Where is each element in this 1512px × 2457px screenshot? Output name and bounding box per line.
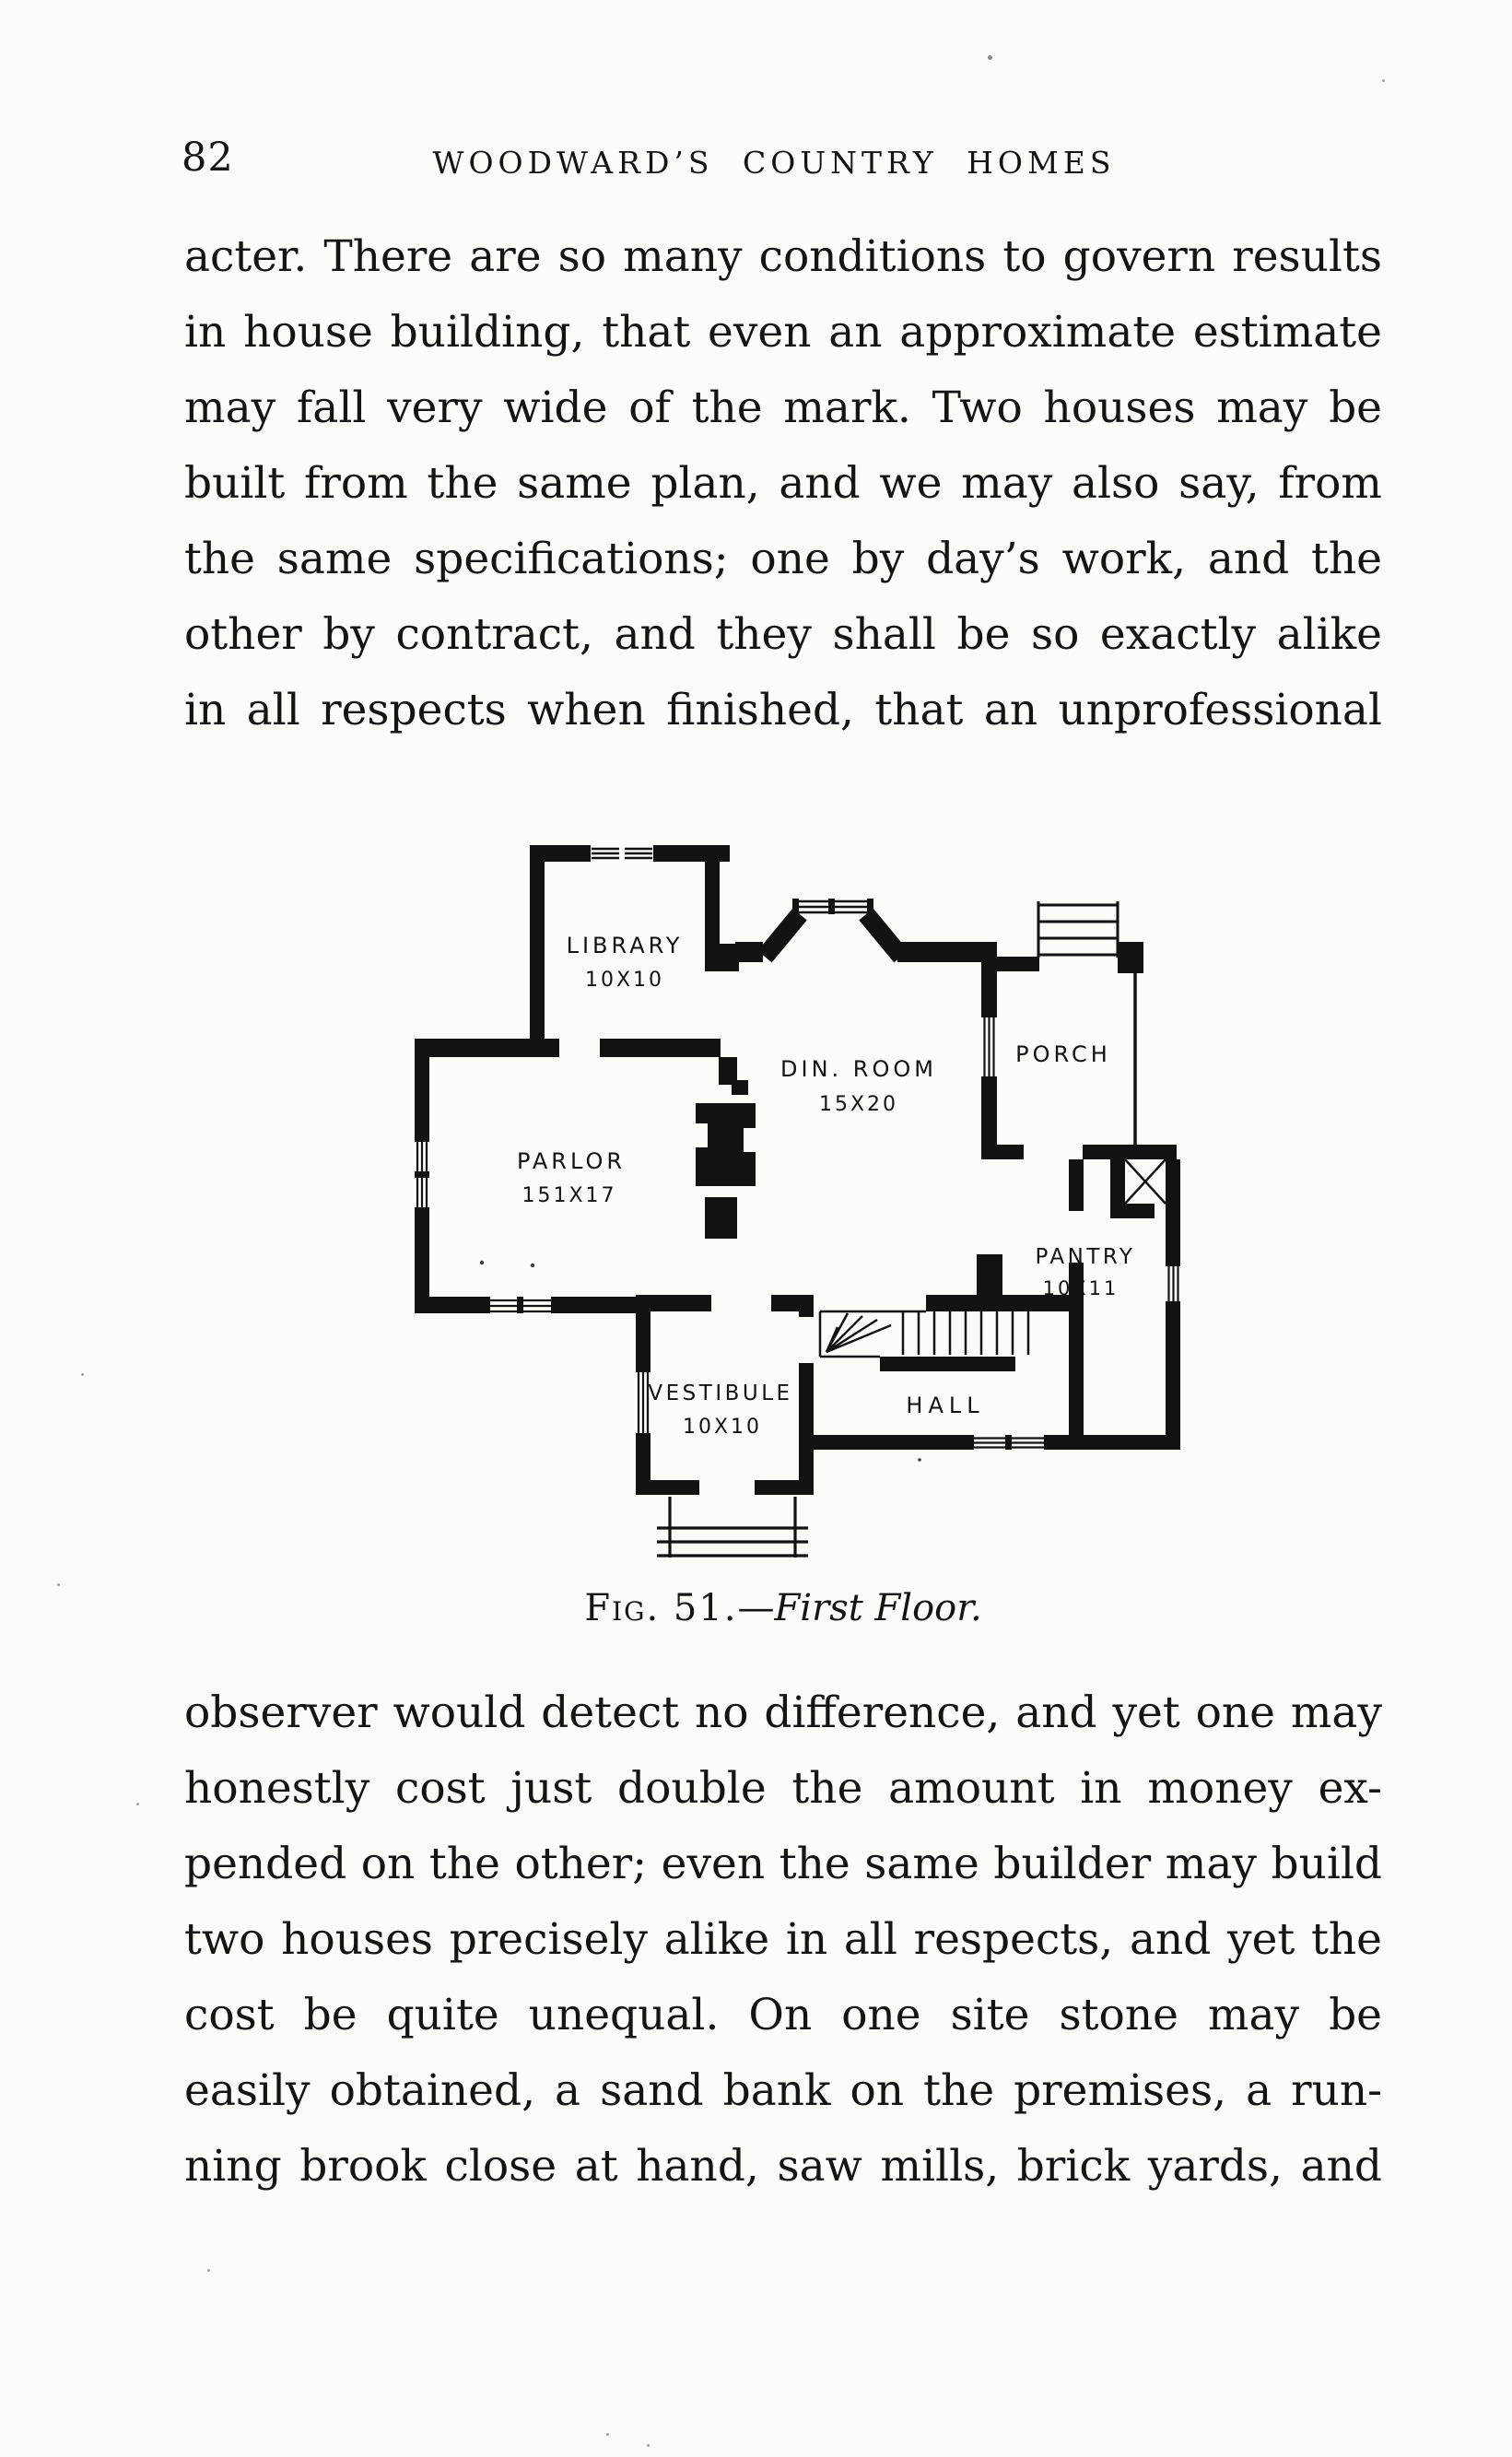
room-dims-parlor: 151X17: [522, 1184, 616, 1207]
body-line: the same specifications; one by day’s wo…: [184, 522, 1382, 597]
paragraph-1: acter. There are so many conditions to g…: [184, 219, 1382, 748]
body-line: cost be quite unequal. On one site stone…: [184, 1978, 1382, 2053]
body-line: acter. There are so many conditions to g…: [184, 219, 1382, 295]
room-label-vestibule: VESTIBULE: [648, 1381, 792, 1405]
body-line: easily obtained, a sand bank on the prem…: [184, 2053, 1382, 2129]
room-dims-vestibule: 10X10: [683, 1416, 762, 1439]
body-line: may fall very wide of the mark. Two hous…: [184, 370, 1382, 446]
body-line: other by contract, and they shall be so …: [184, 597, 1382, 673]
body-line: in all respects when finished, that an u…: [184, 673, 1382, 748]
body-line: two houses precisely alike in all respec…: [184, 1902, 1382, 1978]
scan-speck: [606, 2433, 609, 2436]
book-page: { "page": { "number": "82", "running_hea…: [0, 0, 1512, 2457]
figure-caption-title: First Floor.: [775, 1587, 982, 1629]
scan-speck: [988, 55, 992, 60]
room-dims-pantry: 10X11: [1043, 1277, 1119, 1299]
scan-speck: [81, 1373, 84, 1376]
body-line: in house building, that even an approxim…: [184, 295, 1382, 370]
scan-speck: [136, 1803, 139, 1805]
paragraph-2: observer would detect no difference, and…: [184, 1675, 1382, 2204]
room-label-parlor: PARLOR: [517, 1148, 626, 1174]
scan-speck: [480, 1261, 484, 1264]
scan-speck: [918, 1458, 921, 1462]
page-number: 82: [182, 135, 234, 181]
body-line: built from the same plan, and we may als…: [184, 446, 1382, 522]
room-dims-library: 10X10: [585, 969, 664, 992]
scan-speck: [57, 1583, 60, 1586]
body-line: observer would detect no difference, and…: [184, 1675, 1382, 1751]
scan-speck: [647, 2444, 650, 2447]
room-label-hall: HALL: [906, 1393, 984, 1418]
running-head: WOODWARD’S COUNTRY HOMES: [387, 145, 1161, 181]
figure-caption-label: Fig. 51.: [584, 1587, 737, 1629]
room-dims-dining: 15X20: [819, 1093, 898, 1116]
room-label-pantry: PANTRY: [1036, 1245, 1136, 1269]
figure-caption: Fig. 51.—First Floor.: [184, 1587, 1382, 1629]
body-line: pended on the other; even the same build…: [184, 1827, 1382, 1902]
floor-plan-drawing: LIBRARY 10X10 DIN. ROOM 15X20 PORCH PARL…: [387, 804, 1198, 1569]
room-label-library: LIBRARY: [567, 933, 684, 958]
scan-speck: [207, 2269, 210, 2272]
figure-caption-dash: —: [738, 1587, 775, 1629]
body-line: ning brook close at hand, saw mills, bri…: [184, 2129, 1382, 2204]
room-label-porch: PORCH: [1015, 1041, 1111, 1067]
scan-speck: [1382, 79, 1385, 82]
scan-speck: [531, 1264, 534, 1267]
room-label-dining: DIN. ROOM: [780, 1056, 937, 1082]
body-line: honestly cost just double the amount in …: [184, 1751, 1382, 1827]
figure-51-first-floor-plan: LIBRARY 10X10 DIN. ROOM 15X20 PORCH PARL…: [387, 804, 1198, 1569]
